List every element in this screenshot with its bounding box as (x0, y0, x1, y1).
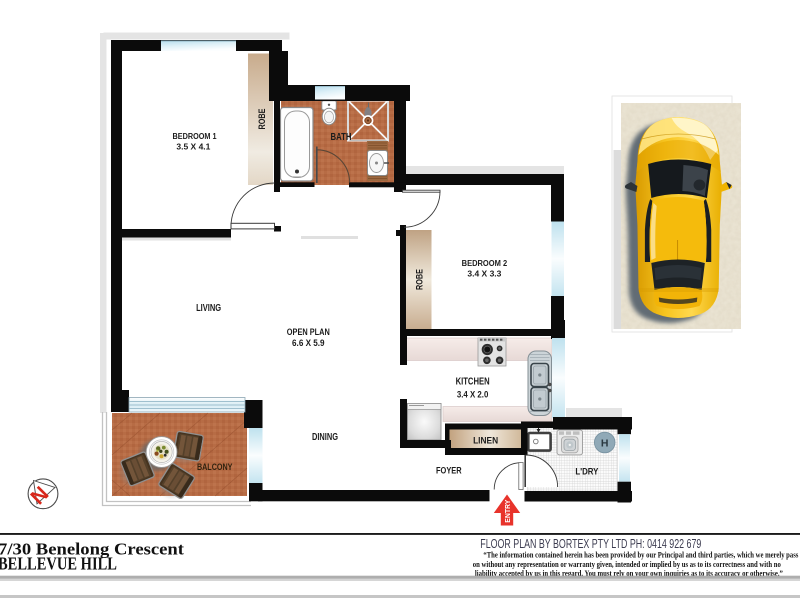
svg-text:6.6 X 5.9: 6.6 X 5.9 (292, 338, 325, 348)
svg-text:ROBE: ROBE (257, 109, 267, 130)
svg-text:“The information contained her: “The information contained herein has be… (483, 550, 799, 559)
svg-text:FLOOR PLAN BY BORTEX PTY LTD P: FLOOR PLAN BY BORTEX PTY LTD PH: 0414 92… (480, 537, 701, 551)
svg-text:3.5 X 4.1: 3.5 X 4.1 (176, 143, 211, 152)
svg-text:BEDROOM 2: BEDROOM 2 (462, 259, 508, 268)
svg-text:BELLEVUE HILL: BELLEVUE HILL (0, 554, 117, 574)
svg-text:L'DRY: L'DRY (575, 467, 599, 478)
svg-text:3.4 X 2.0: 3.4 X 2.0 (457, 390, 489, 401)
svg-text:KITCHEN: KITCHEN (456, 377, 490, 388)
svg-text:DINING: DINING (312, 432, 338, 443)
svg-text:FOYER: FOYER (436, 466, 462, 477)
svg-text:3.4 X 3.3: 3.4 X 3.3 (467, 270, 502, 279)
svg-text:OPEN PLAN: OPEN PLAN (287, 327, 330, 337)
svg-text:LIVING: LIVING (196, 303, 221, 314)
svg-text:LINEN: LINEN (473, 436, 498, 447)
svg-text:on without any representation: on without any representation or warrant… (473, 560, 781, 569)
svg-text:BALCONY: BALCONY (197, 462, 233, 472)
svg-text:BATH: BATH (331, 131, 352, 143)
svg-text:BEDROOM 1: BEDROOM 1 (173, 132, 217, 141)
svg-text:ENTRY: ENTRY (505, 499, 512, 522)
svg-text:ROBE: ROBE (415, 269, 425, 290)
svg-text:H: H (601, 437, 609, 449)
